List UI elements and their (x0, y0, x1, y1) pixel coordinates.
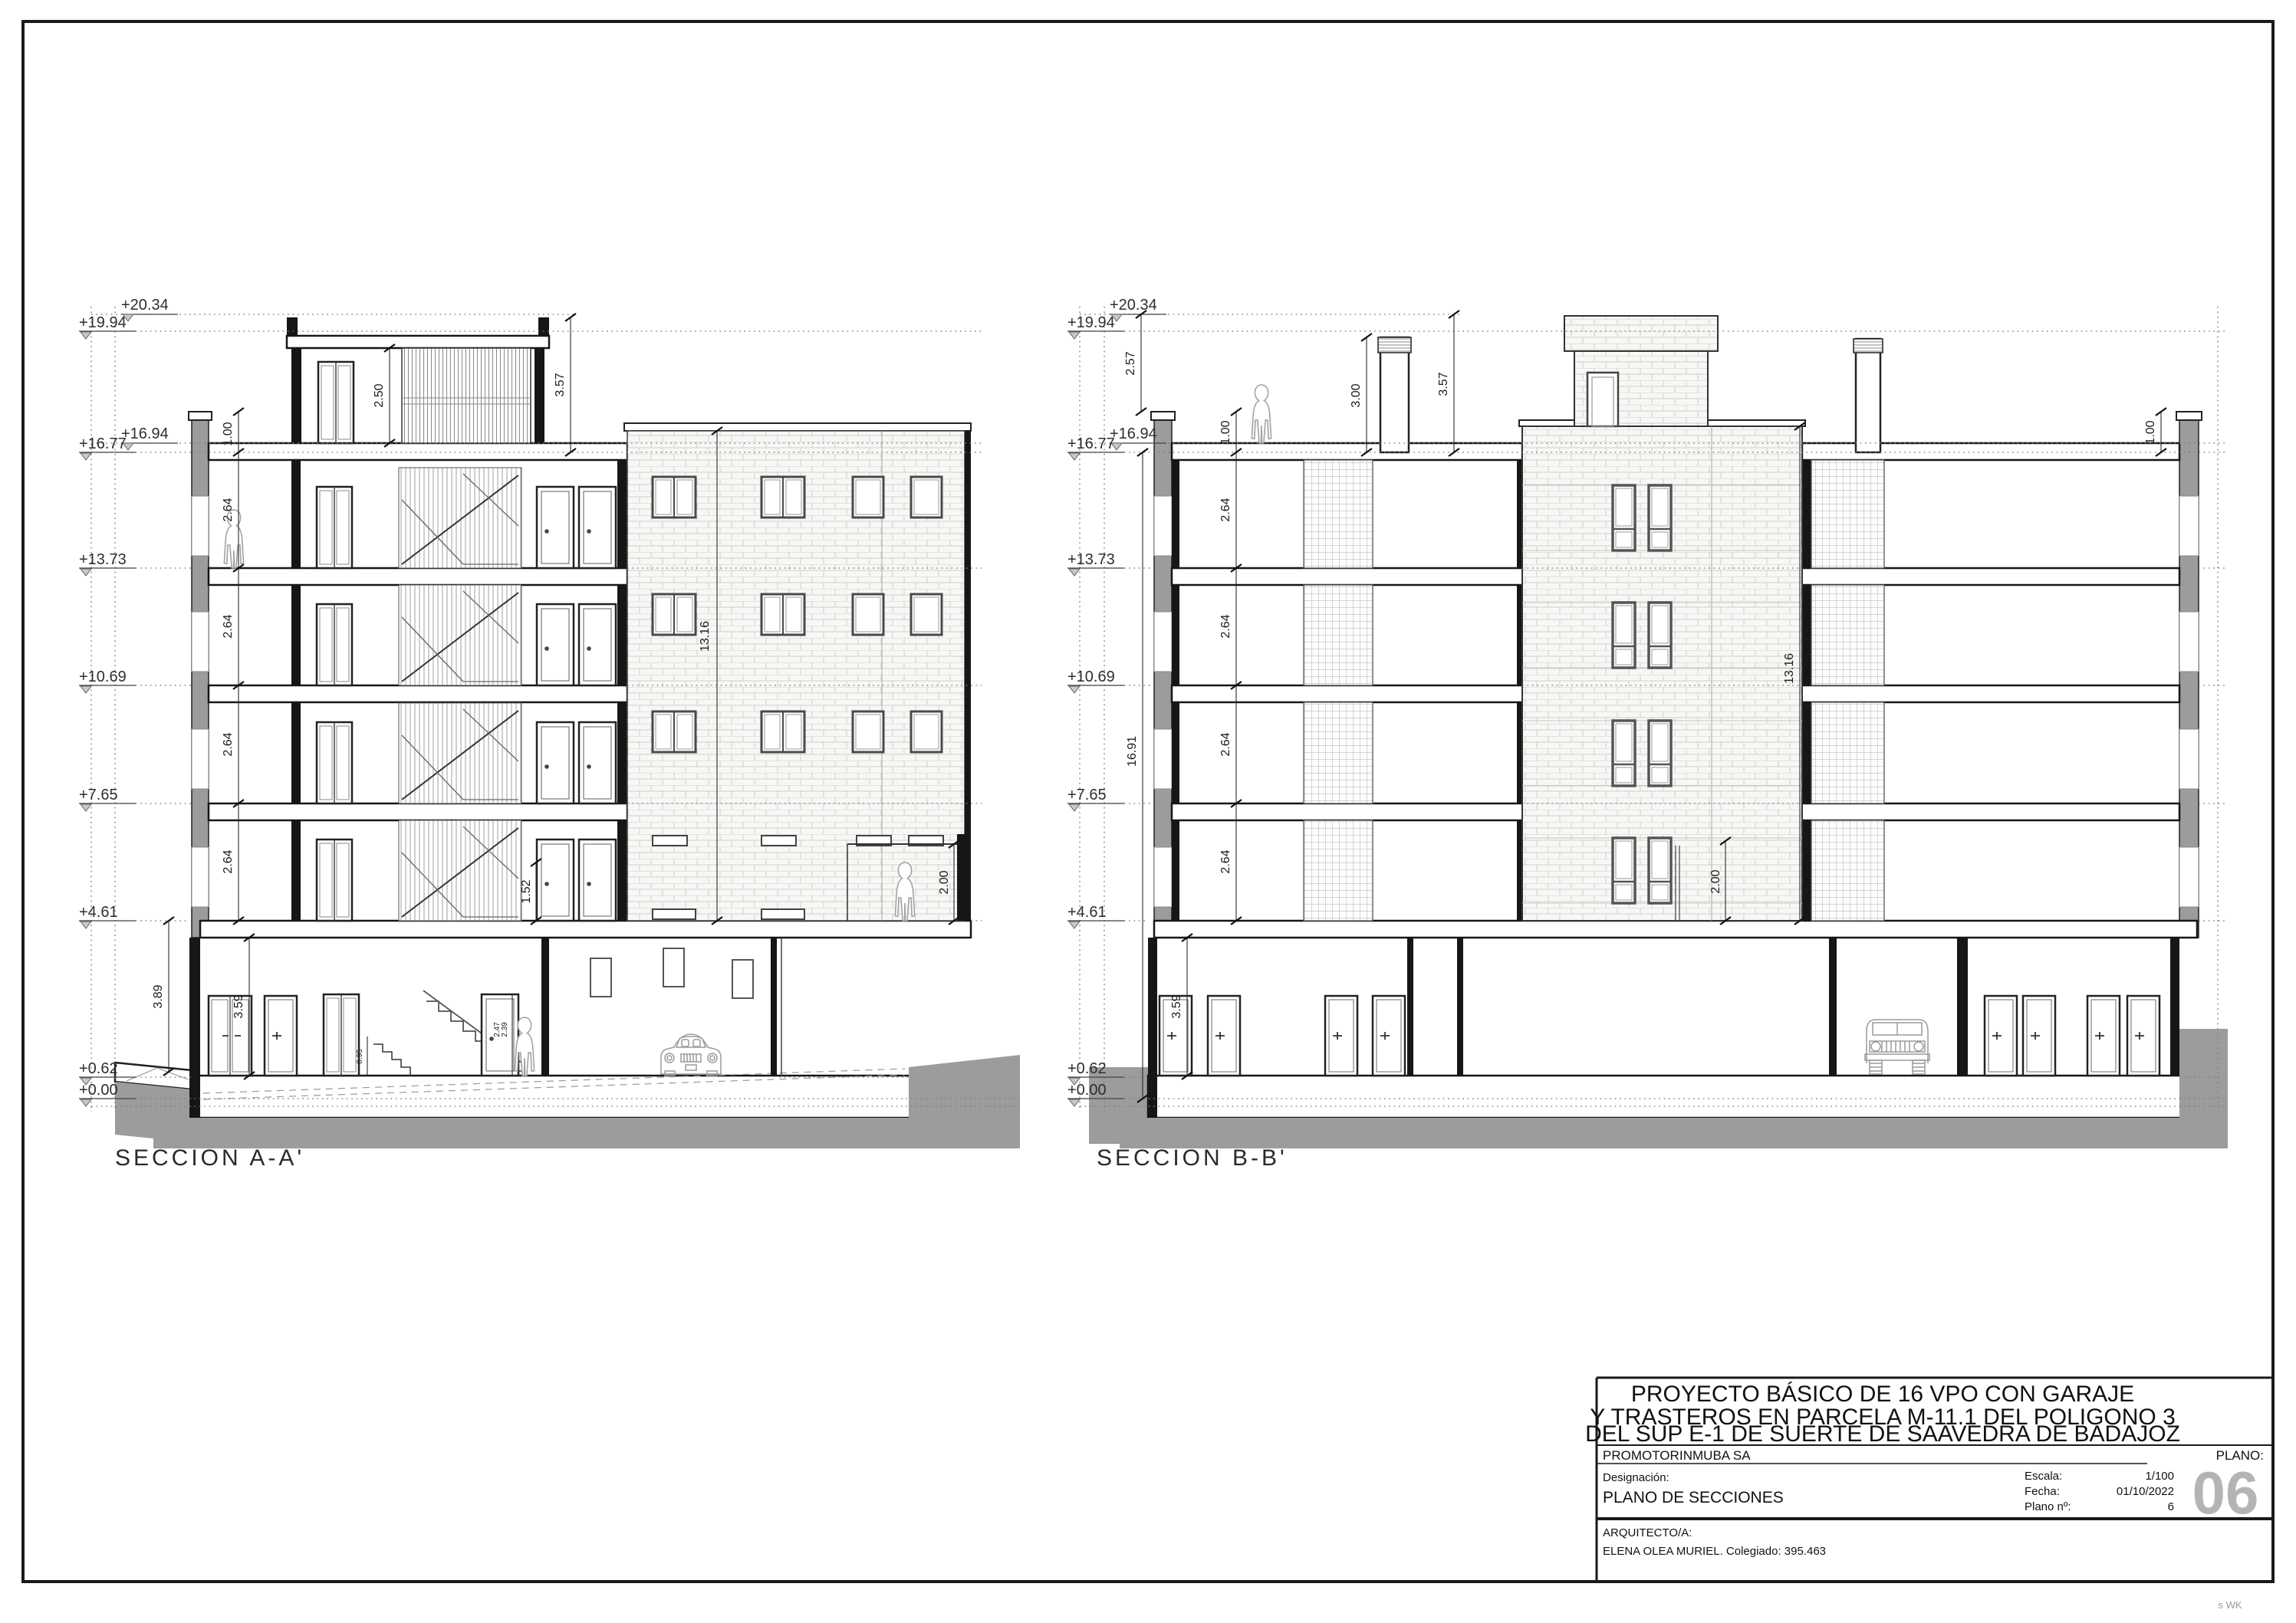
parapet-cap (2176, 412, 2202, 420)
car-sedan (661, 1034, 721, 1076)
apartment-door (579, 839, 616, 921)
facade-window-slot (1154, 847, 1172, 907)
stair-hatch (399, 820, 521, 921)
party-wall-hatch (1811, 820, 1884, 921)
project-title-line-3: DEL SUP E-1 DE SUERTE DE SAAVEDRA DE BAD… (1585, 1421, 2180, 1447)
dim-label: 1.00 (222, 422, 235, 445)
dim-label: 3.57 (1437, 372, 1450, 396)
facade-window (911, 711, 942, 752)
chimney-cap (1854, 339, 1883, 353)
apartment-door (579, 604, 616, 685)
facade-window-slot (192, 612, 209, 672)
basement-stair-lower (373, 1044, 410, 1076)
basement-partition (541, 938, 549, 1076)
plano-num-label: Plano nº: (2025, 1500, 2071, 1513)
elevator-door (317, 487, 352, 568)
roof-slab (1172, 443, 1522, 460)
section-b-title: SECCION B-B' (1097, 1145, 1288, 1171)
elevator-door (318, 362, 354, 443)
facade-window-slot (1154, 729, 1172, 789)
facade-window (1613, 603, 1635, 668)
facade-window (1649, 485, 1671, 550)
dim-label: 2.00 (1709, 869, 1722, 893)
chimney-cap (1378, 337, 1411, 353)
title-block: PROYECTO BÁSICO DE 16 VPO CON GARAJE Y T… (1585, 1378, 2273, 1582)
ground-fill-under (1120, 1118, 2228, 1148)
dim-label: 1.00 (2144, 420, 2157, 444)
garage-window (590, 958, 611, 997)
vent-window (761, 836, 796, 846)
car-jeep (1865, 1020, 1929, 1074)
level-label: +0.62 (79, 1060, 118, 1077)
party-wall-hatch (1304, 460, 1373, 568)
person-silhouette (515, 1017, 534, 1076)
section-a-title: SECCION A-A' (115, 1145, 304, 1171)
facade-window-slot (1154, 496, 1172, 556)
elevator-door (317, 839, 352, 921)
arquitecto-value: ELENA OLEA MURIEL. Colegiado: 395.463 (1603, 1545, 1826, 1558)
facade-window (653, 711, 696, 752)
facade-window (1613, 721, 1635, 786)
dim-label: 2.57 (1124, 351, 1137, 375)
level-label: +4.61 (1067, 904, 1107, 921)
person-silhouette (895, 862, 914, 921)
level-label: +19.94 (1067, 314, 1115, 331)
watermark: s WK (2218, 1599, 2242, 1611)
level-label: +16.77 (1067, 435, 1115, 452)
apartment-door (537, 722, 574, 803)
storage-door (2023, 996, 2055, 1076)
roof-slab (209, 443, 627, 460)
drawing-sheet: +20.34 +19.94 +16.94 +16.77 +13.73 +10.6… (0, 0, 2296, 1623)
dim-label: 2.64 (222, 849, 235, 873)
party-wall-hatch (1304, 702, 1373, 803)
facade-window (653, 477, 696, 517)
chimney (1380, 337, 1409, 452)
plano-num-value: 6 (2168, 1500, 2174, 1513)
level-label: +10.69 (1067, 669, 1115, 685)
facade-window (1649, 603, 1671, 668)
dim-label: 0.95 (356, 1049, 364, 1064)
project-title-line-1: PROYECTO BÁSICO DE 16 VPO CON GARAJE (1631, 1382, 2134, 1407)
level-label: +20.34 (121, 297, 169, 314)
facade-window (761, 477, 804, 517)
basement-wall (189, 938, 200, 1118)
storage-door (1208, 996, 1240, 1076)
foundation-slab (1148, 1076, 2197, 1118)
dim-label: 1.52 (520, 879, 533, 903)
facade-window-slot (2179, 496, 2199, 556)
escala-value: 1/100 (2145, 1470, 2174, 1483)
basement-ceiling-slab (200, 921, 971, 938)
facade-window (1613, 485, 1635, 550)
apartment-door (579, 722, 616, 803)
elevator-door (317, 604, 352, 685)
arquitecto-label: ARQUITECTO/A: (1603, 1526, 1692, 1539)
fecha-label: Fecha: (2025, 1485, 2060, 1498)
sheet-frame (23, 21, 2273, 1582)
dim-label: 3.00 (1350, 383, 1363, 407)
facade-window (761, 594, 804, 635)
basement-partition (1957, 938, 1968, 1076)
parapet-cap (1151, 412, 1175, 420)
facade-window-slot (192, 729, 209, 789)
party-wall-hatch (1811, 460, 1884, 568)
stair-hatch (399, 585, 521, 685)
level-label: +16.94 (1110, 425, 1157, 442)
elevator-door (324, 994, 359, 1076)
storage-door (265, 996, 297, 1076)
dim-label: 2.64 (1219, 498, 1232, 521)
level-label: +0.62 (1067, 1060, 1107, 1077)
facade-window-slot (2179, 612, 2199, 672)
elevator-door (317, 722, 352, 803)
dim-label: 2.64 (1219, 614, 1232, 638)
party-wall-hatch (1304, 820, 1373, 921)
bulkhead-wall (535, 348, 544, 443)
dim-label: 2.64 (222, 614, 235, 638)
stair-hatch (399, 468, 521, 568)
vent-window (761, 909, 804, 919)
facade-window-slot (2179, 729, 2199, 789)
sheet-number: 06 (2192, 1459, 2259, 1526)
dim-label: 2.64 (222, 732, 235, 756)
bulkhead-wall (291, 348, 301, 443)
storage-door (1325, 996, 1357, 1076)
storage-door (2127, 996, 2159, 1076)
dim-label: 1.00 (1219, 420, 1232, 444)
dim-label: 3.59 (232, 994, 245, 1018)
column (1457, 938, 1463, 1076)
level-label: +7.65 (1067, 787, 1107, 803)
party-wall-hatch (1811, 702, 1884, 803)
facade-window (761, 711, 804, 752)
ground-fill-right (909, 1055, 1020, 1119)
level-label: +7.65 (79, 787, 118, 803)
dim-label: 2.64 (222, 498, 235, 521)
garage-window (663, 948, 684, 987)
garage-front-wall (771, 938, 777, 1076)
column (1407, 938, 1413, 1076)
party-wall-hatch (1811, 585, 1884, 685)
person-silhouette (1252, 385, 1271, 443)
apartment-door (537, 604, 574, 685)
facade-window (853, 711, 883, 752)
level-label: +13.73 (1067, 551, 1115, 568)
facade-window (1613, 838, 1635, 903)
facade-window-slot (1154, 612, 1172, 672)
bulkhead-roof-slab (287, 336, 549, 348)
basement-partition (1829, 938, 1837, 1076)
facade-parapet-cap (624, 423, 971, 431)
dim-label: 3.89 (152, 984, 165, 1008)
storage-door (1985, 996, 2017, 1076)
parapet-cap (189, 412, 212, 420)
fecha-value: 01/10/2022 (2117, 1485, 2174, 1498)
vent-window (653, 909, 696, 919)
dim-label: 2.50 (373, 383, 386, 407)
level-label: +10.69 (79, 669, 127, 685)
level-label: +20.34 (1110, 297, 1157, 314)
section-b-drawing: +20.34 +19.94 +16.94 +16.77 +13.73 +10.6… (1067, 297, 2228, 1171)
promotor-label: PROMOTOR: (1603, 1448, 1683, 1463)
facade-window-slot (2179, 847, 2199, 907)
level-label: +19.94 (79, 314, 127, 331)
basement-wall (1148, 938, 1157, 1118)
level-label: +4.61 (79, 904, 118, 921)
section-a-drawing: +20.34 +19.94 +16.94 +16.77 +13.73 +10.6… (79, 297, 1020, 1171)
foundation-slab (194, 1076, 969, 1118)
ground-fill-right (2179, 1029, 2228, 1119)
designacion-value: PLANO DE SECCIONES (1603, 1489, 1784, 1506)
facade-window (853, 477, 883, 517)
dim-label: 16.91 (1126, 736, 1139, 767)
apartment-door (579, 487, 616, 568)
garage-window (732, 960, 753, 998)
vent-window (653, 836, 687, 846)
level-label: +16.77 (79, 435, 127, 452)
promotor-value: INMUBA SA (1679, 1448, 1751, 1463)
dim-label: 2.64 (1219, 732, 1232, 756)
facade-window (853, 594, 883, 635)
facade-window-slot (192, 847, 209, 907)
facade-window (911, 477, 942, 517)
chimney (1856, 339, 1880, 452)
dim-label: 3.57 (554, 373, 567, 396)
level-label: +16.94 (121, 425, 169, 442)
facade-window (653, 594, 696, 635)
level-label: +0.00 (79, 1082, 118, 1099)
designacion-label: Designación: (1603, 1471, 1669, 1484)
dim-label: 3.59 (1170, 994, 1183, 1018)
level-label: +0.00 (1067, 1082, 1107, 1099)
dim-label: 2.64 (1219, 849, 1232, 873)
stair-hatch (399, 703, 521, 803)
level-label: +13.73 (79, 551, 127, 568)
party-wall-hatch (1304, 585, 1373, 685)
dim-label: 2.00 (938, 870, 951, 894)
facade-window-slot (192, 496, 209, 556)
apartment-door (537, 839, 574, 921)
facade-window (1649, 838, 1671, 903)
dim-label: 13.16 (1783, 653, 1796, 684)
dim-label: 2.39 (501, 1022, 509, 1037)
facade-window (1649, 721, 1671, 786)
basement-wall (2170, 938, 2179, 1076)
stair-louver (402, 348, 531, 443)
sections-drawing: +20.34 +19.94 +16.94 +16.77 +13.73 +10.6… (0, 0, 2296, 1623)
floor-slab (209, 685, 627, 702)
ground-fill-under (153, 1118, 1020, 1148)
floor-slab (209, 803, 627, 820)
storage-door (1373, 996, 1405, 1076)
floor-slab (209, 568, 627, 585)
storage-door (2087, 996, 2120, 1076)
facade-window (911, 594, 942, 635)
bulkhead-cap (1564, 316, 1718, 351)
escala-label: Escala: (2025, 1470, 2062, 1483)
dim-label: 13.16 (699, 621, 712, 652)
apartment-door (537, 487, 574, 568)
basement-ceiling-slab (1154, 921, 2197, 938)
